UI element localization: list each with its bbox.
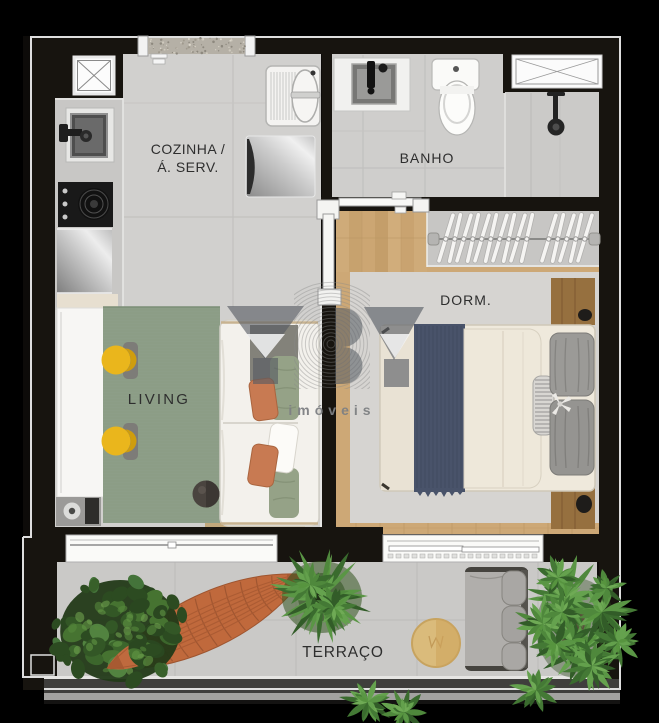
svg-text:DORM.: DORM. — [440, 292, 492, 308]
svg-text:LIVING: LIVING — [128, 391, 190, 408]
svg-text:COZINHA /: COZINHA / — [151, 141, 226, 157]
svg-text:BANHO: BANHO — [400, 150, 455, 166]
svg-text:Á. SERV.: Á. SERV. — [157, 159, 219, 175]
svg-text:TERRAÇO: TERRAÇO — [302, 644, 383, 661]
svg-text:imóveis: imóveis — [288, 402, 375, 418]
